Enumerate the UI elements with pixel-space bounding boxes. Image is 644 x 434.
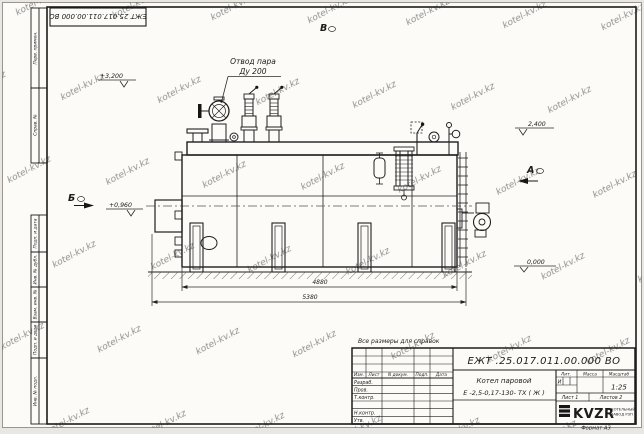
stamp-inv-podl: Инв. № подл. (33, 376, 39, 406)
callout-line2: Ду 200 (239, 67, 267, 76)
col-izm: Изм. (354, 372, 364, 378)
sheet-number: Лист 1 (561, 395, 579, 401)
col-data: Дата (435, 372, 447, 378)
product-name-line2: Е -2,5-0,17-130- ТХ ( Ж ) (463, 389, 545, 397)
col-doc: N докум. (388, 372, 408, 378)
product-name-line1: Котел паровой (477, 377, 532, 385)
row-razrab: Разраб. (354, 380, 373, 386)
callout-dot (220, 100, 222, 102)
top-designation-text: ЕЖТ 25.017.011.00.000 ВО (49, 12, 147, 20)
logo-text: KVZR (573, 407, 615, 422)
reference-note: Все размеры для справок (358, 338, 440, 345)
row-prov: Пров. (354, 388, 368, 394)
title-designation: ЕЖТ .25.017.011.00.000 ВО (468, 356, 621, 367)
col-podp: Подп. (415, 372, 428, 378)
company-line2: ЗАВОД РЗП (611, 413, 633, 417)
mass-label: Масса (583, 372, 597, 378)
stamp-inv-dubl: Инв. № дубл. (33, 254, 39, 284)
row-utv: Утв. (354, 418, 364, 424)
format-note: Формат А3 (581, 425, 611, 430)
company-line1: КОТЕЛЬНЫЙ (611, 407, 635, 412)
elevation-3200: +3,200 (100, 73, 123, 80)
stamp-vzam-inv: Взам. инв. № (33, 289, 39, 319)
lit-value: И (558, 380, 562, 386)
elevation-0960: +0,960 (109, 202, 132, 209)
col-list: Лист (368, 372, 380, 378)
stamp-perv-primen: Перв. примен. (33, 32, 39, 65)
view-label-b: Б (68, 193, 75, 204)
ground-hatch (148, 272, 472, 279)
row-nkontr: Н.контр. (354, 410, 375, 416)
dim-outer-label: 5380 (302, 294, 317, 301)
elevation-2400: 2,400 (528, 121, 546, 128)
scale-label: Масштаб (609, 372, 630, 378)
callout-line1: Отвод пара (230, 57, 276, 66)
stamp-podp-data-2: Подп. и дата (33, 325, 39, 355)
dim-inner-label: 4880 (312, 279, 327, 286)
sheets-total: Листов 2 (599, 395, 623, 401)
lit-label: Лит. (560, 372, 571, 378)
elevation-0000: 0,000 (527, 259, 545, 266)
stamp-podp-data-1: Подп. и дата (33, 218, 39, 248)
stamp-sprav-no: Справ. № (33, 114, 39, 136)
boiler-ga-drawing: kotel-kv.kz kotel-kv.kz ЕЖТ 25.017.011.0… (0, 0, 644, 430)
view-label-v: В (320, 23, 327, 34)
row-tkontr: Т.контр. (354, 395, 375, 401)
lit-mass-scale-header: Лит. Масса Масштаб (560, 372, 630, 378)
scale-value: 1:25 (611, 384, 627, 392)
view-label-a: А (526, 165, 534, 176)
